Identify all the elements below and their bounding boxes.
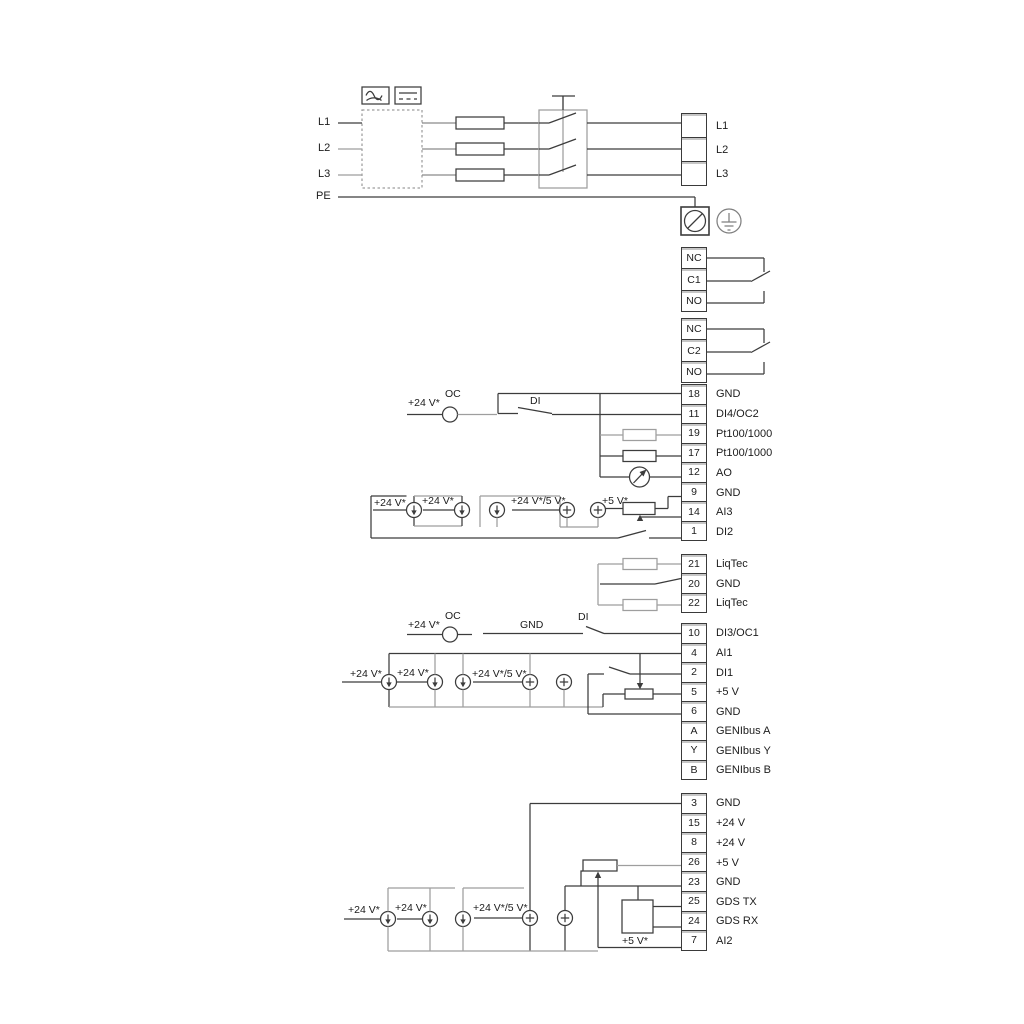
power-ai2-circuit (344, 804, 681, 952)
terminal-label: DI4/OC2 (716, 408, 759, 420)
terminal-cell: A (681, 721, 707, 742)
current-source-icon (381, 912, 396, 927)
io-top-terminal-block: 18 GND 11 DI4/OC2 19 Pt100/1000 17 Pt100… (681, 384, 772, 541)
terminal-label: DI1 (716, 667, 733, 679)
open-collector-icon (443, 407, 458, 422)
terminal-cell (681, 161, 707, 186)
current-source-icon (456, 675, 471, 690)
potentiometer (625, 689, 653, 699)
terminal-label: +24 V (716, 837, 745, 849)
terminal-label: AO (716, 467, 732, 479)
current-source-icon (407, 503, 422, 518)
resistor (623, 559, 657, 570)
fuse (456, 117, 504, 181)
terminal-cell: 7 (681, 930, 707, 951)
terminal-row: 20 GND (681, 574, 748, 593)
supply-label: +24 V* (422, 496, 454, 507)
terminal-label: GND (716, 388, 740, 400)
terminal-row: L3 (681, 162, 728, 186)
terminal-row: 18 GND (681, 384, 772, 405)
di-label: DI (578, 612, 589, 623)
terminal-cell: 18 (681, 384, 707, 405)
terminal-label: +24 V (716, 817, 745, 829)
terminal-row: 8 +24 V (681, 833, 758, 853)
liqtec-circuit (598, 559, 681, 611)
terminal-row: C1 (681, 269, 707, 290)
mains-in-label-l1: L1 (318, 117, 330, 128)
terminal-label: L3 (716, 168, 728, 180)
open-collector-icon (443, 627, 458, 642)
terminal-cell: C1 (681, 268, 707, 290)
terminal-cell: 4 (681, 643, 707, 664)
terminal-label: LiqTec (716, 558, 748, 570)
terminal-row: 7 AI2 (681, 931, 758, 951)
resistor (623, 451, 656, 462)
terminal-row: NC (681, 247, 707, 269)
terminal-row: C2 (681, 340, 707, 361)
terminal-row: 25 GDS TX (681, 892, 758, 912)
terminal-cell: C2 (681, 339, 707, 361)
terminal-row: 21 LiqTec (681, 554, 748, 574)
gnd-label: GND (520, 620, 543, 631)
ac-symbol-icon (362, 87, 389, 104)
oc-label: OC (445, 611, 461, 622)
terminal-row: 4 AI1 (681, 644, 771, 664)
terminal-label: GND (716, 578, 740, 590)
supply-label: +24 V* (350, 669, 382, 680)
terminal-cell: 17 (681, 443, 707, 464)
terminal-cell: 14 (681, 501, 707, 522)
terminal-row: 9 GND (681, 483, 772, 503)
terminal-row: NO (681, 362, 707, 383)
terminal-cell: NC (681, 318, 707, 340)
terminal-cell: 26 (681, 852, 707, 873)
terminal-cell: 10 (681, 623, 707, 644)
current-source-icon (456, 912, 471, 927)
terminal-cell: 6 (681, 701, 707, 722)
dc-symbol-icon (395, 87, 421, 104)
terminal-row: 11 DI4/OC2 (681, 405, 772, 425)
di3-circuit (407, 627, 681, 643)
terminal-cell: 22 (681, 593, 707, 613)
io-mid-terminal-block: 10 DI3/OC1 4 AI1 2 DI1 5 +5 V 6 GND A GE… (681, 623, 771, 780)
terminal-row: 10 DI3/OC1 (681, 623, 771, 644)
terminal-cell: NO (681, 361, 707, 383)
terminal-label: Pt100/1000 (716, 447, 772, 459)
supply-label: +24 V* (348, 905, 380, 916)
supply-label: +24 V*/5 V* (511, 496, 566, 507)
terminal-label: GENIbus B (716, 764, 771, 776)
terminal-cell: 20 (681, 573, 707, 593)
terminal-row: 1 DI2 (681, 522, 772, 542)
terminal-label: +5 V (716, 857, 739, 869)
terminal-label: GND (716, 706, 740, 718)
terminal-row: 26 +5 V (681, 853, 758, 873)
wiring-svg (0, 0, 1024, 1024)
terminal-row: 6 GND (681, 702, 771, 722)
gds-sensor-box (622, 900, 653, 933)
terminal-label: GENIbus Y (716, 745, 771, 757)
terminal-label: GND (716, 487, 740, 499)
screw-terminal-icon (681, 207, 709, 235)
terminal-cell: 24 (681, 911, 707, 932)
terminal-cell: 25 (681, 891, 707, 912)
terminal-cell: 19 (681, 423, 707, 444)
terminal-cell: Y (681, 740, 707, 761)
terminal-row: 14 AI3 (681, 502, 772, 522)
supply-label: +24 V* (397, 668, 429, 679)
terminal-row: 15 +24 V (681, 814, 758, 834)
supply-label: +24 V*/5 V* (472, 669, 527, 680)
supply-label: +5 V* (602, 496, 628, 507)
terminal-label: AI3 (716, 506, 733, 518)
current-source-icon (557, 675, 572, 690)
terminal-row: B GENIbus B (681, 761, 771, 781)
terminal-label: Pt100/1000 (716, 428, 772, 440)
terminal-label: GDS TX (716, 896, 757, 908)
terminal-cell: 15 (681, 813, 707, 834)
supply-label: +24 V* (395, 903, 427, 914)
supply-label: +24 V*/5 V* (473, 903, 528, 914)
terminal-row: L2 (681, 138, 728, 162)
terminal-label: GDS RX (716, 915, 758, 927)
terminal-cell: 8 (681, 832, 707, 853)
supply-label: +24 V* (374, 498, 406, 509)
terminal-label: GND (716, 876, 740, 888)
terminal-cell (681, 113, 707, 138)
terminal-row: 2 DI1 (681, 663, 771, 683)
terminal-label: L2 (716, 144, 728, 156)
power-terminal-block: 3 GND 15 +24 V 8 +24 V 26 +5 V 23 GND 25… (681, 793, 758, 951)
mains-in-label-pe: PE (316, 191, 331, 202)
terminal-row: 19 Pt100/1000 (681, 424, 772, 444)
terminal-row: 24 GDS RX (681, 912, 758, 932)
terminal-cell: 9 (681, 482, 707, 503)
terminal-label: DI2 (716, 526, 733, 538)
terminal-cell: 5 (681, 682, 707, 703)
wiring-diagram: L1 L2 L3 PE L1 L2 L3 NC C1 NO NC C2 NO 1… (0, 0, 1024, 1024)
supply-label: +24 V* (408, 620, 440, 631)
di4-circuit (407, 394, 681, 488)
current-source-icon (558, 911, 573, 926)
current-source-icon (490, 503, 505, 518)
disconnect-switch (539, 96, 681, 188)
filter-box (362, 110, 422, 188)
terminal-cell: 21 (681, 554, 707, 574)
potentiometer (583, 860, 617, 871)
oc-label: OC (445, 389, 461, 400)
resistor (623, 600, 657, 611)
terminal-cell: 2 (681, 662, 707, 683)
terminal-label: GENIbus A (716, 725, 770, 737)
mains-in-label-l2: L2 (318, 143, 330, 154)
terminal-row: NO (681, 291, 707, 312)
terminal-cell: B (681, 760, 707, 781)
relay2-terminal-block: NC C2 NO (681, 318, 707, 383)
terminal-label: LiqTec (716, 597, 748, 609)
terminal-cell: NC (681, 247, 707, 269)
terminal-cell: 1 (681, 521, 707, 542)
relay1-terminal-block: NC C1 NO (681, 247, 707, 312)
resistor (623, 430, 656, 441)
mains-out-terminal-block: L1 L2 L3 (681, 113, 728, 186)
terminal-row: 5 +5 V (681, 683, 771, 703)
terminal-label: AI1 (716, 647, 733, 659)
terminal-cell: 11 (681, 404, 707, 425)
terminal-cell: 12 (681, 462, 707, 483)
terminal-label: GND (716, 797, 740, 809)
di-label: DI (530, 396, 541, 407)
terminal-label: AI2 (716, 935, 733, 947)
terminal-cell (681, 137, 707, 162)
terminal-cell: 23 (681, 871, 707, 892)
terminal-row: L1 (681, 113, 728, 138)
relay-contacts (707, 258, 770, 374)
terminal-row: 22 LiqTec (681, 594, 748, 613)
current-source-icon (382, 675, 397, 690)
terminal-row: 3 GND (681, 793, 758, 814)
ai1-circuit (342, 654, 681, 715)
terminal-label: +5 V (716, 686, 739, 698)
terminal-row: A GENIbus A (681, 722, 771, 742)
supply-label: +24 V* (408, 398, 440, 409)
terminal-row: 23 GND (681, 872, 758, 892)
earth-ground-icon (717, 209, 741, 233)
supply-label: +5 V* (622, 936, 648, 947)
terminal-cell: 3 (681, 793, 707, 814)
terminal-cell: NO (681, 290, 707, 312)
terminal-label: L1 (716, 120, 728, 132)
liqtec-terminal-block: 21 LiqTec 20 GND 22 LiqTec (681, 554, 748, 613)
terminal-row: 17 Pt100/1000 (681, 444, 772, 464)
terminal-row: NC (681, 318, 707, 340)
analog-output-meter-icon (630, 467, 650, 487)
terminal-row: 12 AO (681, 463, 772, 483)
terminal-label: DI3/OC1 (716, 627, 759, 639)
mains-in-label-l3: L3 (318, 169, 330, 180)
current-source-icon (455, 503, 470, 518)
terminal-row: Y GENIbus Y (681, 741, 771, 761)
current-source-icon (428, 675, 443, 690)
